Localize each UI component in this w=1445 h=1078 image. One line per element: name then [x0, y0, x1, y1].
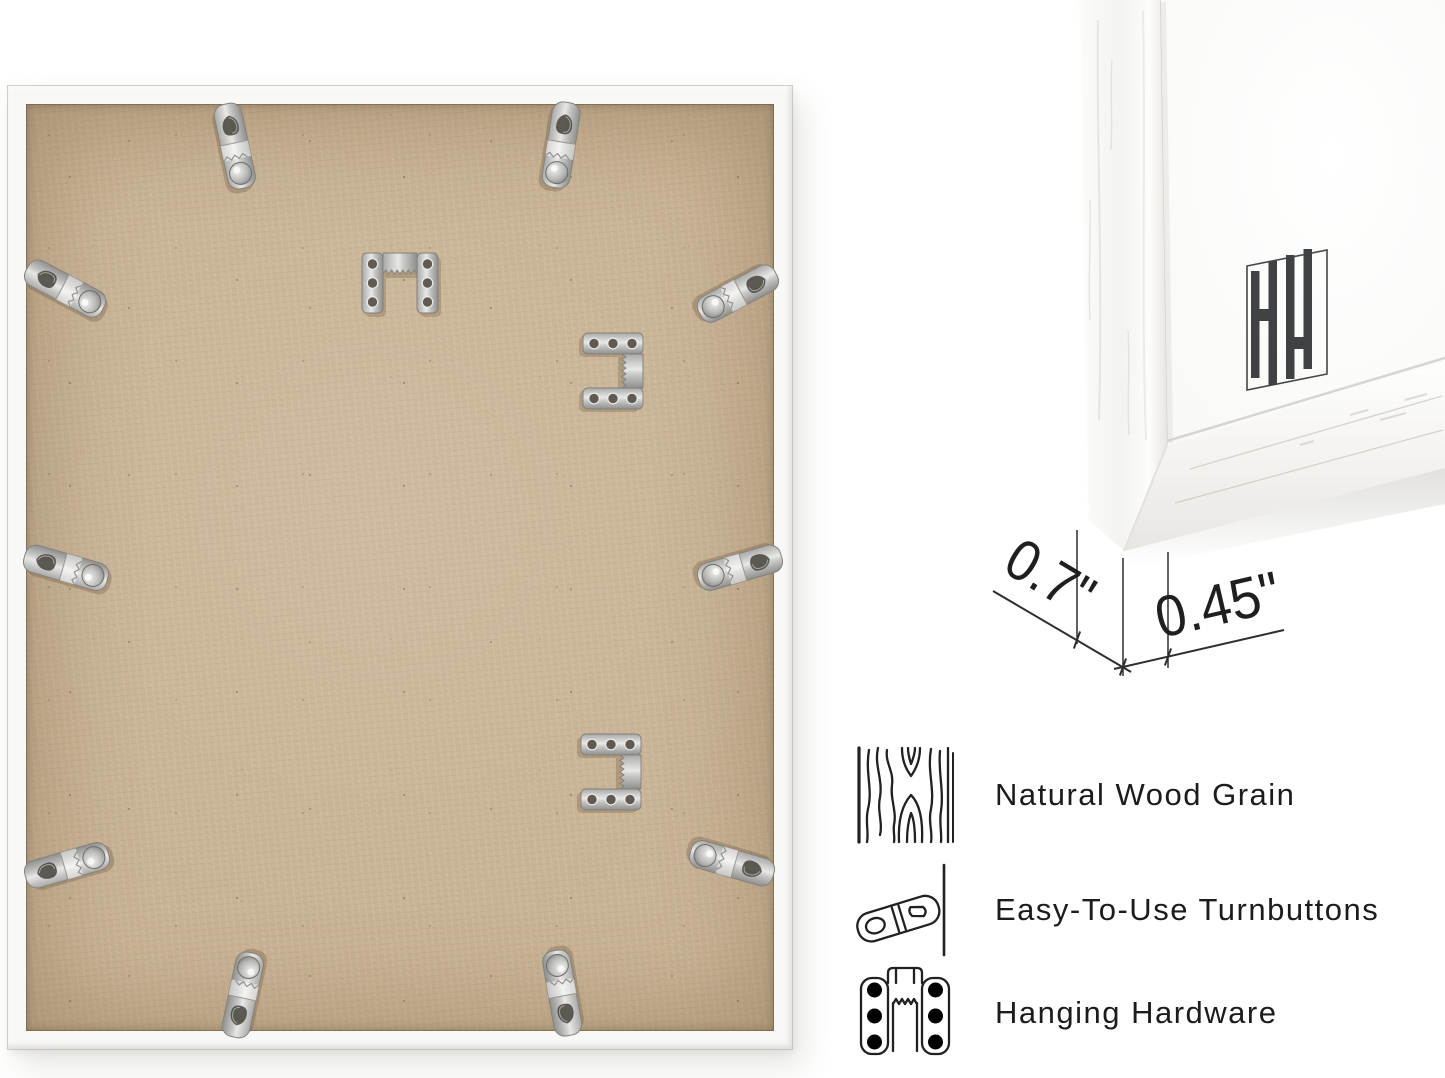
frame-back-photo — [8, 86, 792, 1049]
wood-grain-icon — [852, 745, 958, 845]
feature-label: Easy-To-Use Turnbuttons — [995, 892, 1379, 928]
feature-item: Natural Wood Grain — [852, 745, 1295, 845]
face-width-dimension-label: 0.45" — [1149, 559, 1286, 651]
feature-item: Hanging Hardware — [852, 963, 1277, 1063]
feature-label: Natural Wood Grain — [995, 777, 1295, 813]
turnbutton-icon — [852, 860, 958, 960]
feature-item: Easy-To-Use Turnbuttons — [852, 860, 1379, 960]
depth-dimension-label: 0.7" — [994, 526, 1106, 629]
product-infographic: 0.7" 0.45" Natural Wood Grain — [0, 0, 1445, 1078]
dimension-annotations: 0.7" 0.45" — [960, 520, 1305, 695]
hanging-hardware-icon — [852, 963, 958, 1063]
frame-side-face — [1078, 0, 1167, 551]
mdf-backing — [26, 104, 774, 1031]
feature-label: Hanging Hardware — [995, 995, 1277, 1031]
frame-corner-photo — [1050, 0, 1445, 580]
